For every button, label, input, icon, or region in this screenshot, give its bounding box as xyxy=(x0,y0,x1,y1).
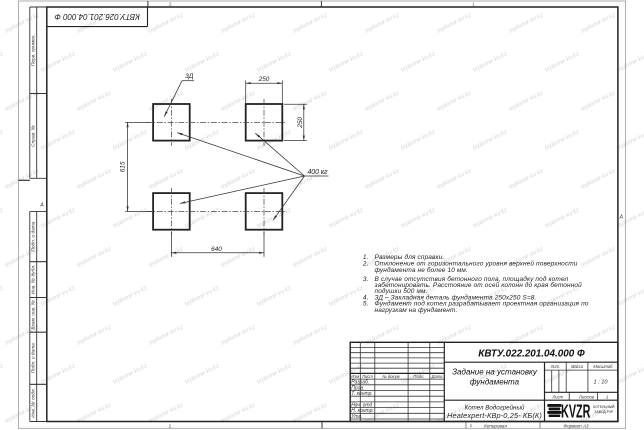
svg-text:А: А xyxy=(619,215,624,221)
svg-text:1 : 10: 1 : 10 xyxy=(594,379,609,385)
svg-text:3.: 3. xyxy=(363,276,369,283)
svg-text:5.: 5. xyxy=(363,300,369,307)
svg-text:фундамента: фундамента xyxy=(470,378,520,387)
svg-text:Копировал: Копировал xyxy=(484,423,507,428)
svg-text:Подп. и дата: Подп. и дата xyxy=(31,343,37,373)
svg-text:КВТУ.026.201.04.000 Ф: КВТУ.026.201.04.000 Ф xyxy=(54,12,140,21)
svg-text:КОТЕЛЬНЫЙ: КОТЕЛЬНЫЙ xyxy=(593,405,615,409)
svg-text:Heatexpert-КВр-0,25- КБ(К): Heatexpert-КВр-0,25- КБ(К) xyxy=(447,411,542,420)
svg-text:№ докум.: № докум. xyxy=(382,374,400,379)
svg-text:Взам. инв. №: Взам. инв. № xyxy=(31,300,37,330)
svg-text:Лист: Лист xyxy=(361,374,373,379)
svg-text:615: 615 xyxy=(120,161,127,172)
svg-text:ЗАВОД РЗР: ЗАВОД РЗР xyxy=(594,410,613,414)
svg-text:1: 1 xyxy=(606,394,608,399)
svg-text:Масштаб: Масштаб xyxy=(593,364,613,369)
svg-text:3Д: 3Д xyxy=(185,73,194,80)
svg-text:250: 250 xyxy=(258,76,270,83)
svg-text:640: 640 xyxy=(211,246,222,253)
svg-text:Подп. и дата: Подп. и дата xyxy=(31,221,37,251)
svg-text:250: 250 xyxy=(297,117,304,129)
svg-text:Утв.: Утв. xyxy=(351,414,362,420)
svg-text:400 кг: 400 кг xyxy=(307,169,328,176)
svg-text:нагрузкам на фундамент.: нагрузкам на фундамент. xyxy=(375,306,458,314)
svg-text:фундамента не более 10 мм.: фундамента не более 10 мм. xyxy=(375,266,469,274)
svg-text:Подп.: Подп. xyxy=(413,374,424,379)
svg-text:Масса: Масса xyxy=(571,364,584,369)
svg-text:2.: 2. xyxy=(362,261,369,268)
svg-text:А: А xyxy=(39,203,44,209)
svg-text:Листов: Листов xyxy=(578,394,595,399)
svg-text:Инв. № подл.: Инв. № подл. xyxy=(31,388,37,418)
svg-text:Лит.: Лит. xyxy=(550,364,561,369)
svg-text:Дата: Дата xyxy=(430,374,443,379)
svg-text:Изм: Изм xyxy=(351,374,359,379)
svg-text:Задание на установку: Задание на установку xyxy=(452,368,538,377)
svg-text:Справ. №: Справ. № xyxy=(31,125,37,147)
svg-text:Т. контр.: Т. контр. xyxy=(351,391,373,397)
svg-text:Перв. примен.: Перв. примен. xyxy=(31,34,37,66)
svg-text:КВТУ.022.201.04.000 Ф: КВТУ.022.201.04.000 Ф xyxy=(478,348,585,359)
svg-text:Инв. № дубл.: Инв. № дубл. xyxy=(31,265,37,295)
svg-text:Формат А3: Формат А3 xyxy=(563,423,589,428)
svg-text:Лист: Лист xyxy=(552,394,564,399)
svg-text:KVZR: KVZR xyxy=(561,400,591,421)
